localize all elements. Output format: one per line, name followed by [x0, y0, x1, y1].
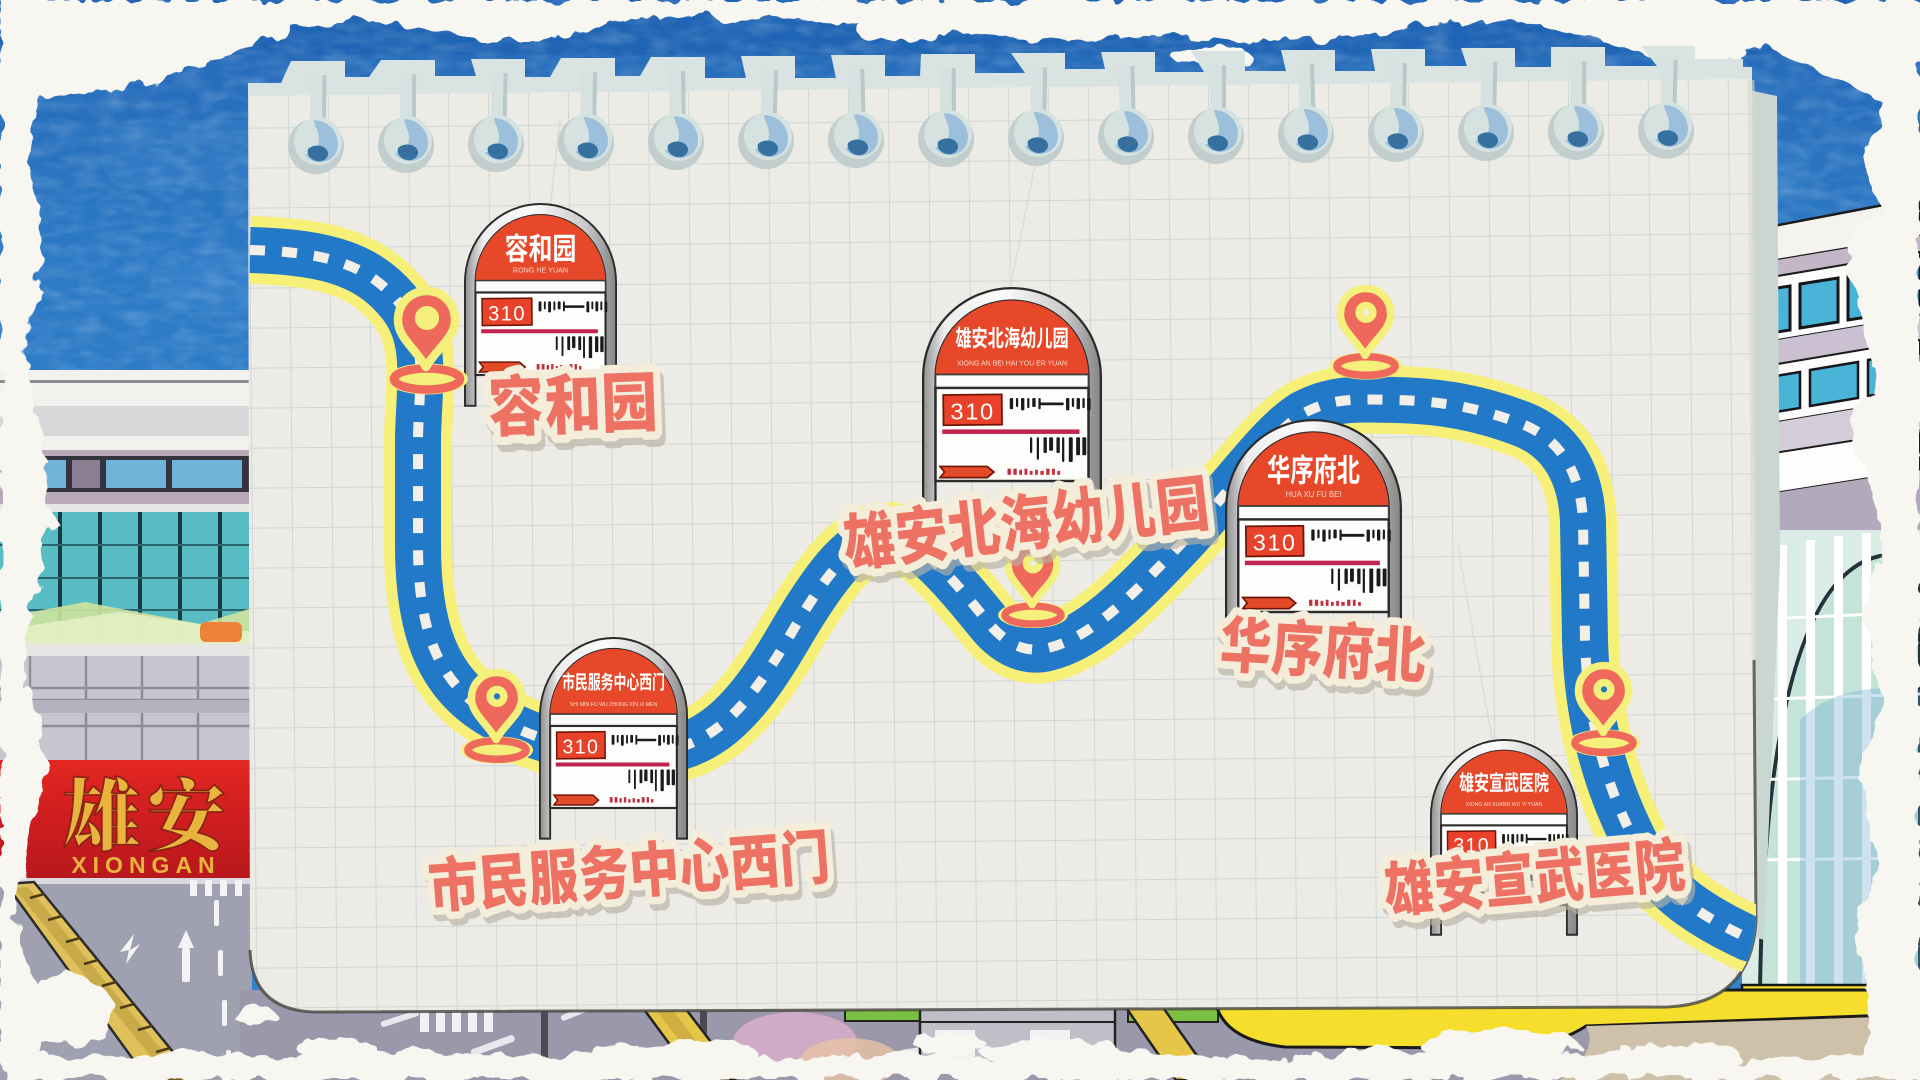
- svg-text:RONG HE YUAN: RONG HE YUAN: [513, 265, 568, 274]
- svg-text:SHI MIN FU WU ZHONG XIN XI MEN: SHI MIN FU WU ZHONG XIN XI MEN: [570, 702, 658, 708]
- svg-text:HUA XU FU BEI: HUA XU FU BEI: [1286, 490, 1342, 499]
- svg-text:310: 310: [950, 398, 994, 424]
- svg-text:XIONGAN: XIONGAN: [71, 852, 220, 878]
- svg-text:XIONG AN XUANN WU YI YUAN: XIONG AN XUANN WU YI YUAN: [1466, 802, 1543, 808]
- svg-text:310: 310: [488, 302, 526, 325]
- svg-text:310: 310: [563, 736, 600, 759]
- svg-text:310: 310: [1253, 530, 1297, 556]
- svg-text:XIONG AN BEI HAI YOU ER YUAN: XIONG AN BEI HAI YOU ER YUAN: [957, 361, 1067, 368]
